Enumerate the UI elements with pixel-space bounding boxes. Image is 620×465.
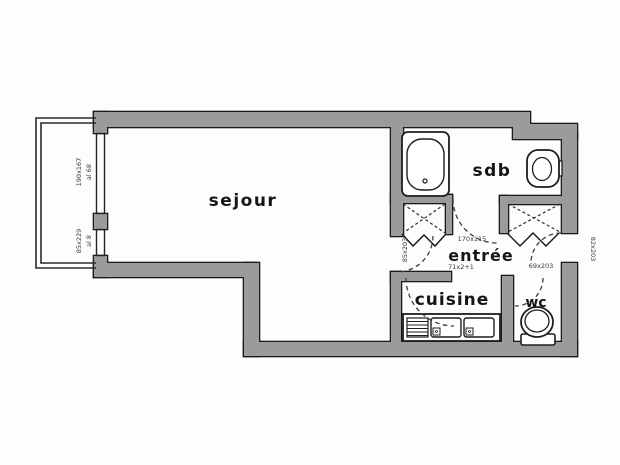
entree-dim-2-label: 71x2+1	[448, 263, 474, 271]
toilet-icon	[521, 307, 555, 345]
balcony-window-dim-label: 190x167	[75, 158, 83, 187]
kitchen-sink-icon	[403, 314, 500, 341]
washbasin-icon	[527, 150, 562, 187]
sejour-label: sejour	[209, 191, 278, 211]
balcony-door-sill-label: al 8	[85, 235, 93, 247]
balcony-door-dim-label: 85x229	[75, 229, 83, 254]
plan-background	[0, 0, 620, 465]
sdb-label: sdb	[473, 161, 512, 181]
wc-door-dim-label: 69x203	[529, 262, 554, 270]
cuisine-label: cuisine	[415, 290, 490, 310]
entrance-door-dim-label: 82x203	[589, 237, 597, 262]
sejour-door-dim-label: 85x203	[401, 238, 409, 263]
floor-plan-page: sejour sdb entrée cuisine wc 190x167 al …	[0, 0, 620, 465]
balcony-window-sill-label: al 68	[85, 164, 93, 180]
floor-plan-drawing: sejour sdb entrée cuisine wc 190x167 al …	[0, 0, 620, 465]
bathtub-icon	[402, 132, 449, 196]
entree-dim-1-label: 170x115	[458, 235, 487, 243]
wc-label: wc	[525, 295, 546, 311]
